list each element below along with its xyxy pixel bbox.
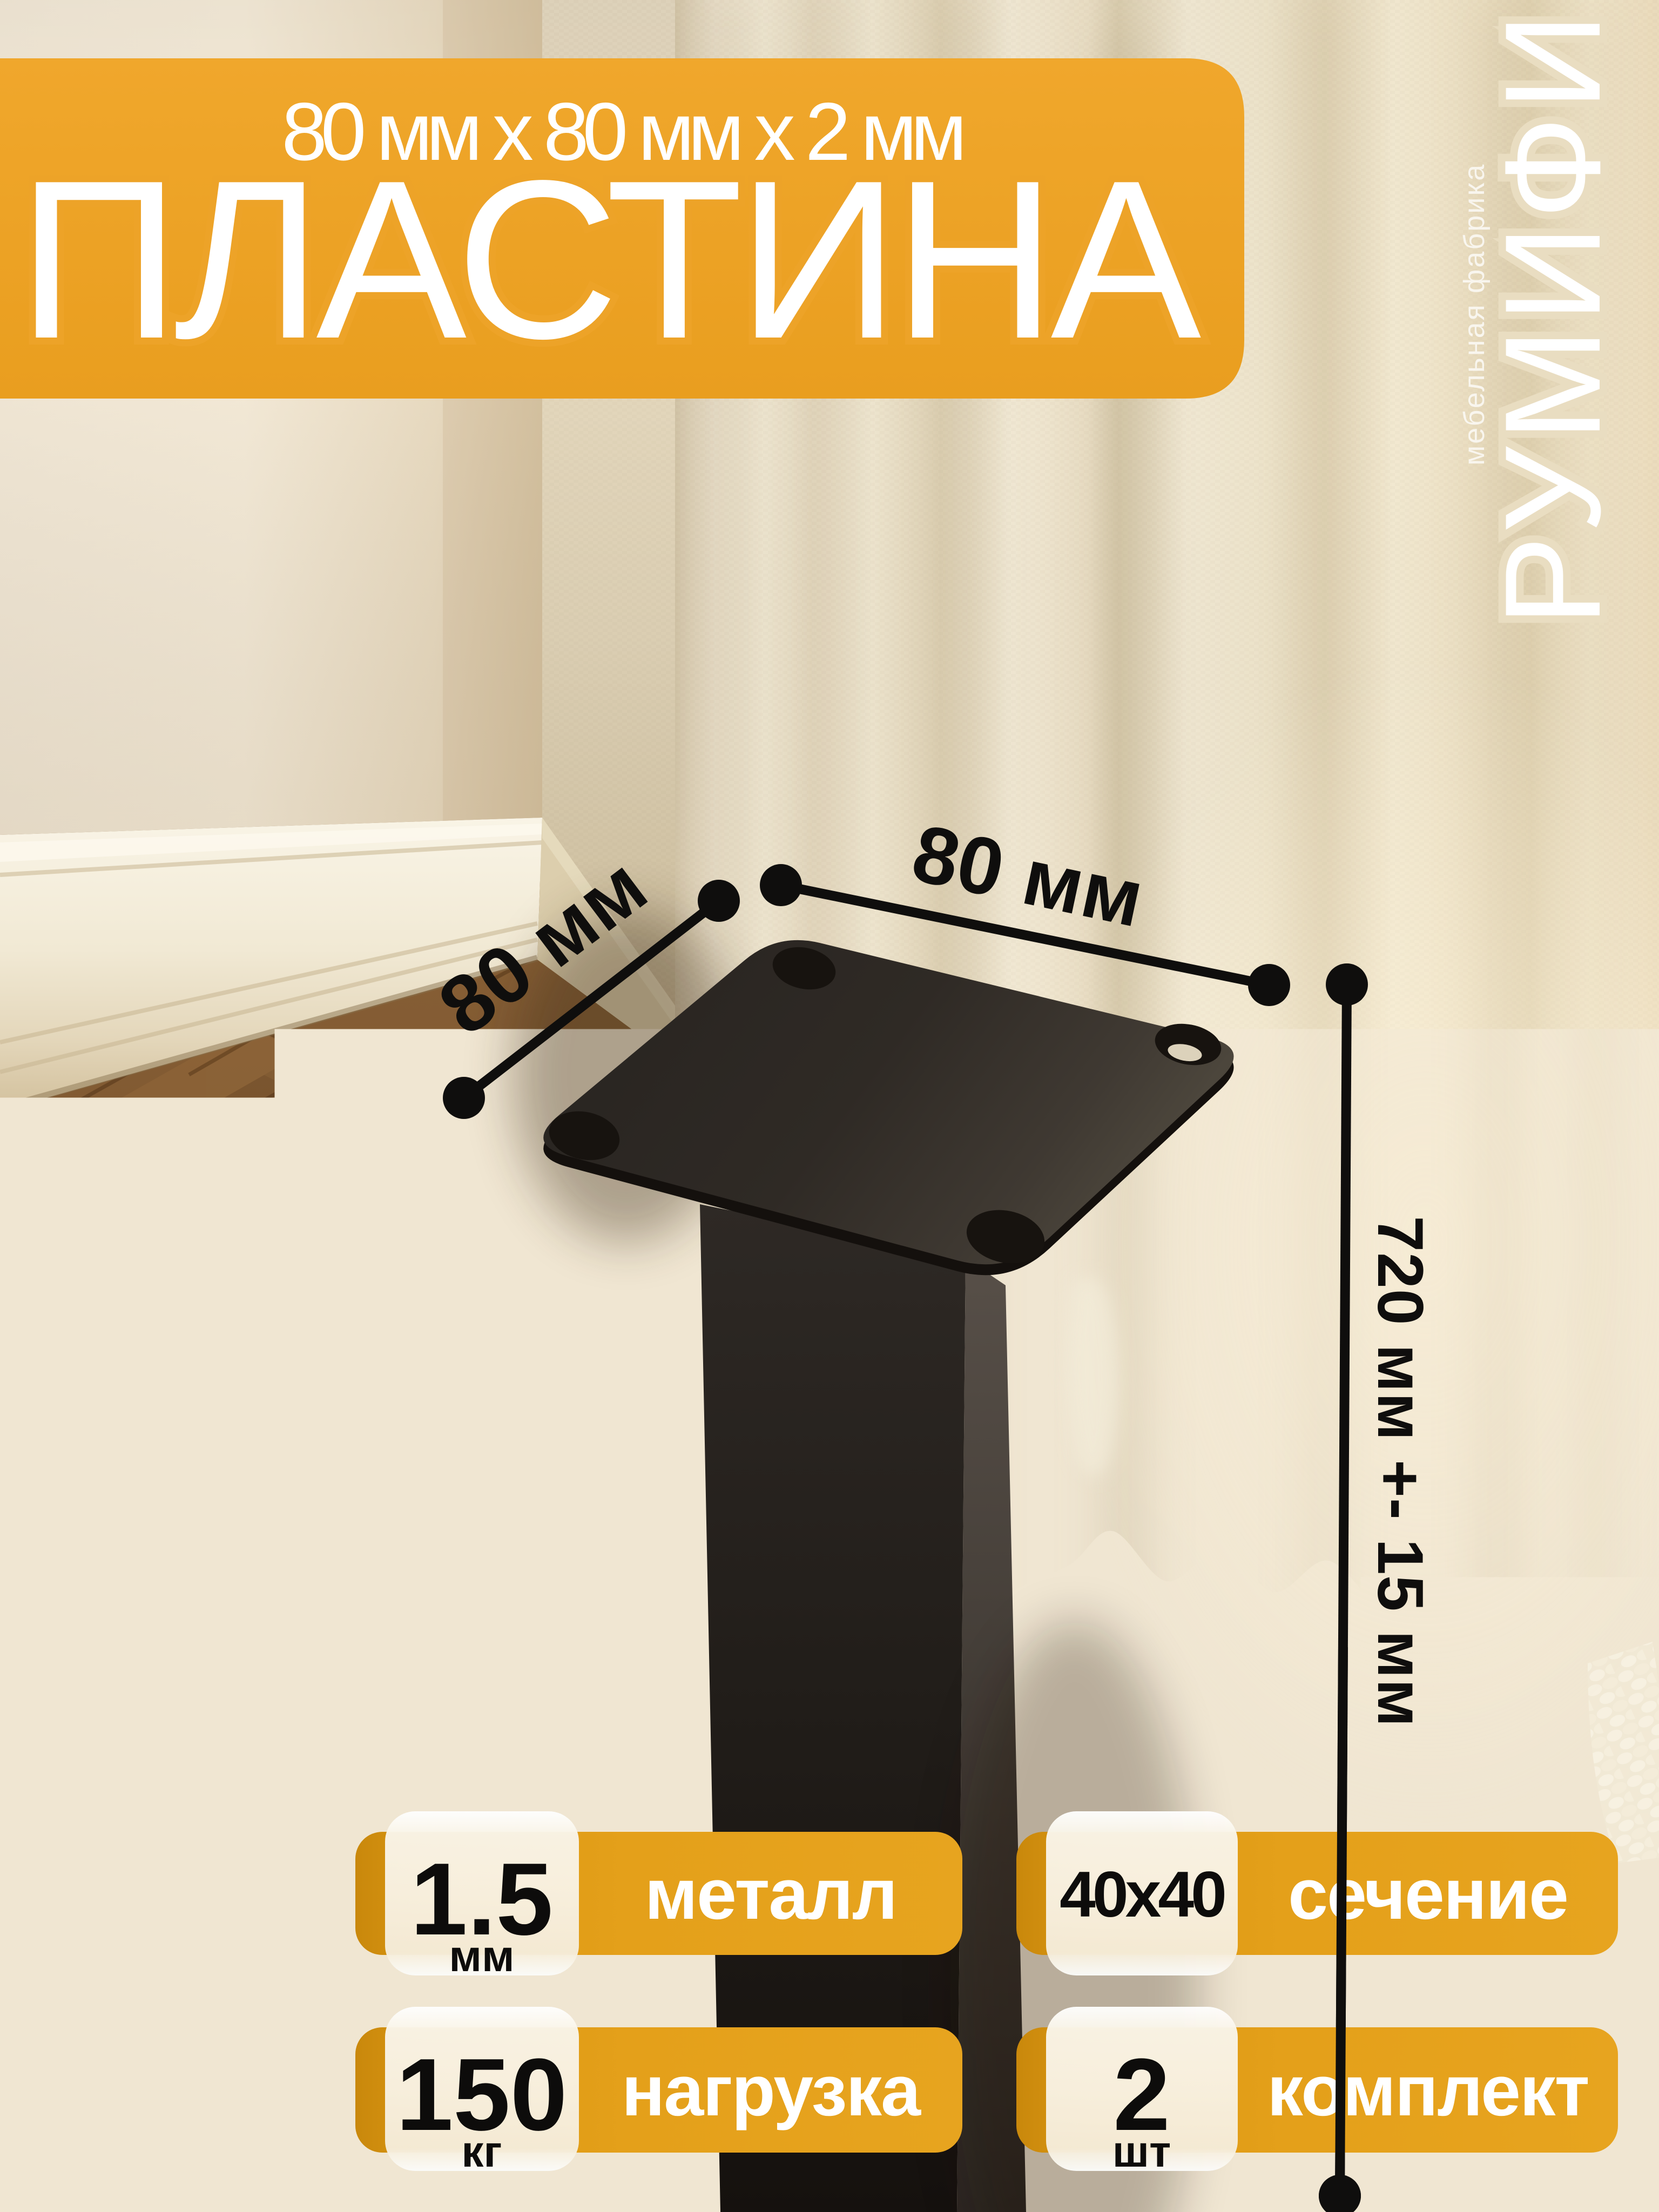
svg-text:720 мм +- 15 мм: 720 мм +- 15 мм (1364, 1216, 1437, 1727)
svg-text:комплект: комплект (1267, 2051, 1588, 2131)
svg-text:мм: мм (449, 1932, 514, 1981)
svg-text:сечение: сечение (1288, 1854, 1568, 1934)
svg-text:шт: шт (1112, 2127, 1171, 2176)
svg-text:металл: металл (645, 1854, 897, 1934)
svg-text:нагрузка: нагрузка (622, 2051, 921, 2131)
svg-text:РУМИФИ: РУМИФИ (1477, 8, 1629, 626)
svg-text:ПЛАСТИНА: ПЛАСТИНА (18, 133, 1203, 386)
svg-text:40x40: 40x40 (1060, 1858, 1224, 1931)
svg-text:кг: кг (461, 2127, 502, 2176)
svg-text:мебельная фабрика: мебельная фабрика (1458, 163, 1491, 466)
